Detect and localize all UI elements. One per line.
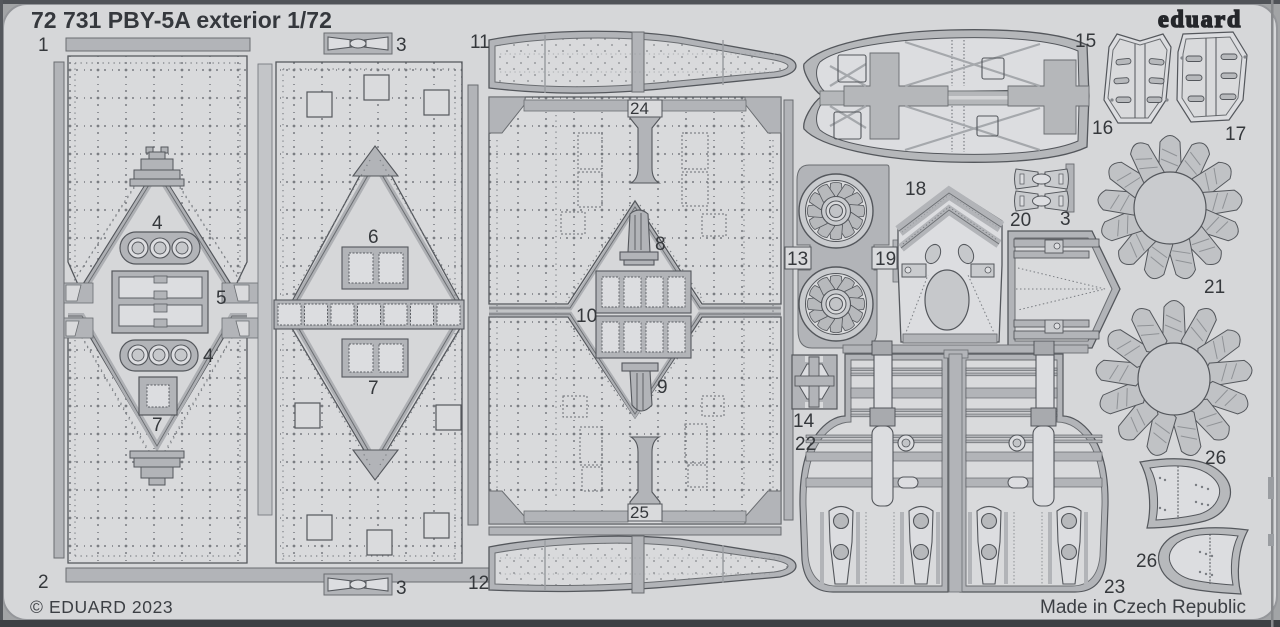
svg-text:1: 1 bbox=[38, 35, 49, 56]
svg-text:15: 15 bbox=[1075, 31, 1096, 52]
svg-text:26: 26 bbox=[1136, 551, 1157, 572]
svg-text:23: 23 bbox=[1104, 577, 1125, 598]
svg-text:19: 19 bbox=[875, 249, 896, 270]
svg-text:12: 12 bbox=[468, 573, 489, 594]
svg-text:10: 10 bbox=[576, 306, 597, 327]
svg-text:7: 7 bbox=[368, 378, 379, 399]
svg-text:© EDUARD 2023: © EDUARD 2023 bbox=[30, 597, 173, 617]
svg-text:2: 2 bbox=[38, 572, 49, 593]
svg-text:11: 11 bbox=[470, 32, 490, 53]
svg-text:17: 17 bbox=[1225, 124, 1246, 145]
svg-text:3: 3 bbox=[396, 35, 407, 56]
svg-text:Made in Czech Republic: Made in Czech Republic bbox=[1040, 597, 1246, 618]
svg-text:7: 7 bbox=[152, 415, 163, 436]
svg-text:6: 6 bbox=[368, 227, 379, 248]
svg-text:13: 13 bbox=[787, 249, 808, 270]
svg-text:4: 4 bbox=[152, 213, 163, 234]
svg-text:24: 24 bbox=[630, 99, 649, 118]
svg-text:3: 3 bbox=[396, 578, 407, 599]
svg-text:25: 25 bbox=[630, 503, 649, 522]
svg-text:5: 5 bbox=[216, 288, 227, 309]
svg-text:22: 22 bbox=[795, 434, 816, 455]
svg-text:21: 21 bbox=[1204, 277, 1225, 298]
svg-text:20: 20 bbox=[1010, 210, 1031, 231]
svg-text:14: 14 bbox=[793, 411, 815, 432]
svg-text:72 731 PBY-5A exterior 1/72: 72 731 PBY-5A exterior 1/72 bbox=[31, 7, 332, 33]
svg-text:18: 18 bbox=[905, 179, 926, 200]
svg-text:26: 26 bbox=[1205, 448, 1226, 469]
svg-text:8: 8 bbox=[655, 234, 666, 255]
svg-text:3: 3 bbox=[1060, 209, 1071, 230]
svg-text:4: 4 bbox=[203, 346, 214, 367]
svg-text:16: 16 bbox=[1092, 118, 1113, 139]
svg-text:eduard: eduard bbox=[1158, 7, 1242, 33]
svg-text:9: 9 bbox=[657, 377, 668, 398]
